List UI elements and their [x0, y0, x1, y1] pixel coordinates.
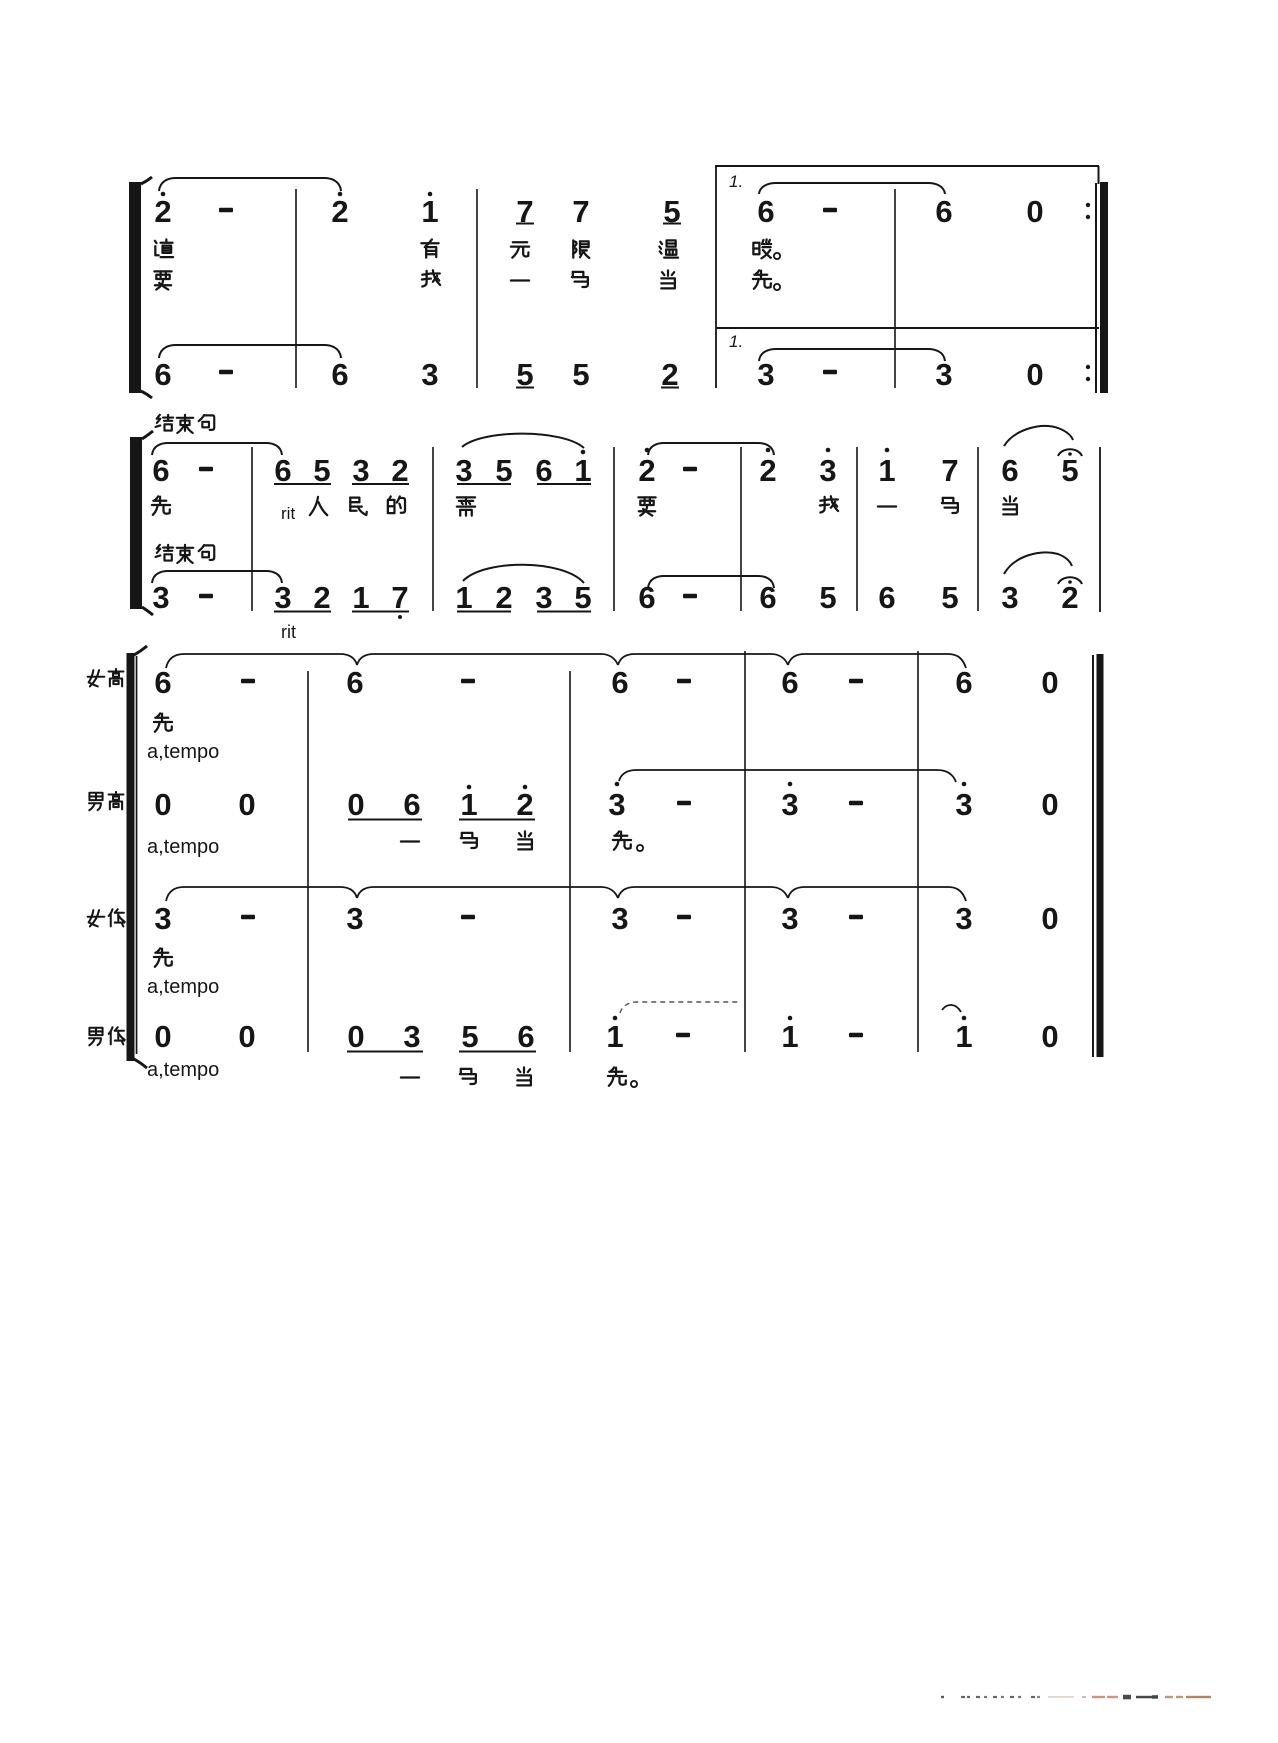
- svg-text:6: 6: [517, 1019, 534, 1054]
- svg-text:3: 3: [154, 901, 171, 936]
- svg-text:6: 6: [152, 453, 169, 488]
- svg-text:a,tempo: a,tempo: [147, 976, 219, 998]
- svg-text:3: 3: [274, 580, 291, 615]
- svg-text:3: 3: [781, 787, 798, 822]
- svg-text:6: 6: [757, 194, 774, 229]
- svg-text:3: 3: [608, 787, 625, 822]
- svg-text:2: 2: [495, 580, 512, 615]
- svg-text:3: 3: [346, 901, 363, 936]
- svg-text:0: 0: [1041, 1019, 1058, 1054]
- svg-text:1: 1: [781, 1019, 798, 1054]
- svg-text:a,tempo: a,tempo: [147, 836, 219, 858]
- svg-text:1: 1: [606, 1019, 623, 1054]
- svg-text:3: 3: [1001, 580, 1018, 615]
- svg-text:0: 0: [154, 787, 171, 822]
- svg-text:2: 2: [1061, 580, 1078, 615]
- svg-text:1: 1: [574, 453, 591, 488]
- svg-text:1.: 1.: [729, 172, 743, 191]
- svg-text:6: 6: [331, 357, 348, 392]
- svg-text:5: 5: [572, 357, 589, 392]
- svg-text:2: 2: [331, 194, 348, 229]
- svg-text:6: 6: [154, 357, 171, 392]
- svg-text:0: 0: [347, 1019, 364, 1054]
- svg-text:6: 6: [535, 453, 552, 488]
- svg-text:1: 1: [421, 194, 438, 229]
- svg-text:3: 3: [352, 453, 369, 488]
- svg-text:3: 3: [955, 901, 972, 936]
- svg-text:2: 2: [313, 580, 330, 615]
- svg-text:3: 3: [935, 357, 952, 392]
- svg-text:5: 5: [574, 580, 591, 615]
- svg-text:1.: 1.: [729, 332, 743, 351]
- svg-text:3: 3: [611, 901, 628, 936]
- svg-text:2: 2: [516, 787, 533, 822]
- svg-text:2: 2: [638, 453, 655, 488]
- svg-text:3: 3: [819, 453, 836, 488]
- svg-text:6: 6: [759, 580, 776, 615]
- svg-text:6: 6: [955, 665, 972, 700]
- svg-text:2: 2: [154, 194, 171, 229]
- svg-text:3: 3: [955, 787, 972, 822]
- svg-text:0: 0: [347, 787, 364, 822]
- svg-text:6: 6: [403, 787, 420, 822]
- svg-text:7: 7: [572, 194, 589, 229]
- svg-text:3: 3: [757, 357, 774, 392]
- svg-text:3: 3: [781, 901, 798, 936]
- svg-text:7: 7: [941, 453, 958, 488]
- svg-text:1: 1: [352, 580, 369, 615]
- svg-text:6: 6: [638, 580, 655, 615]
- svg-text:5: 5: [495, 453, 512, 488]
- svg-text:a,tempo: a,tempo: [147, 741, 219, 763]
- svg-text:3: 3: [455, 453, 472, 488]
- svg-text:5: 5: [1061, 453, 1078, 488]
- svg-text:6: 6: [1001, 453, 1018, 488]
- svg-text:3: 3: [421, 357, 438, 392]
- svg-text:6: 6: [935, 194, 952, 229]
- svg-text:0: 0: [1041, 901, 1058, 936]
- svg-text:1: 1: [460, 787, 477, 822]
- svg-text:0: 0: [1026, 357, 1043, 392]
- svg-text:3: 3: [403, 1019, 420, 1054]
- svg-text:5: 5: [819, 580, 836, 615]
- svg-text:1: 1: [955, 1019, 972, 1054]
- svg-text:1: 1: [878, 453, 895, 488]
- svg-text:5: 5: [461, 1019, 478, 1054]
- svg-text:7: 7: [391, 580, 408, 615]
- svg-text:2: 2: [759, 453, 776, 488]
- svg-text:0: 0: [1041, 665, 1058, 700]
- svg-text:6: 6: [274, 453, 291, 488]
- svg-text:0: 0: [1041, 787, 1058, 822]
- svg-text:2: 2: [391, 453, 408, 488]
- svg-text:rit: rit: [281, 504, 295, 523]
- svg-text:rit: rit: [281, 622, 296, 642]
- svg-text:5: 5: [313, 453, 330, 488]
- svg-text:3: 3: [152, 580, 169, 615]
- svg-text:0: 0: [1026, 194, 1043, 229]
- svg-text:1: 1: [455, 580, 472, 615]
- svg-text:6: 6: [878, 580, 895, 615]
- svg-text:a,tempo: a,tempo: [147, 1059, 219, 1081]
- svg-text:6: 6: [346, 665, 363, 700]
- svg-text:6: 6: [154, 665, 171, 700]
- svg-text:6: 6: [611, 665, 628, 700]
- svg-text:5: 5: [941, 580, 958, 615]
- svg-text:6: 6: [781, 665, 798, 700]
- svg-text:0: 0: [238, 1019, 255, 1054]
- svg-text:0: 0: [154, 1019, 171, 1054]
- svg-text:0: 0: [238, 787, 255, 822]
- svg-text:3: 3: [535, 580, 552, 615]
